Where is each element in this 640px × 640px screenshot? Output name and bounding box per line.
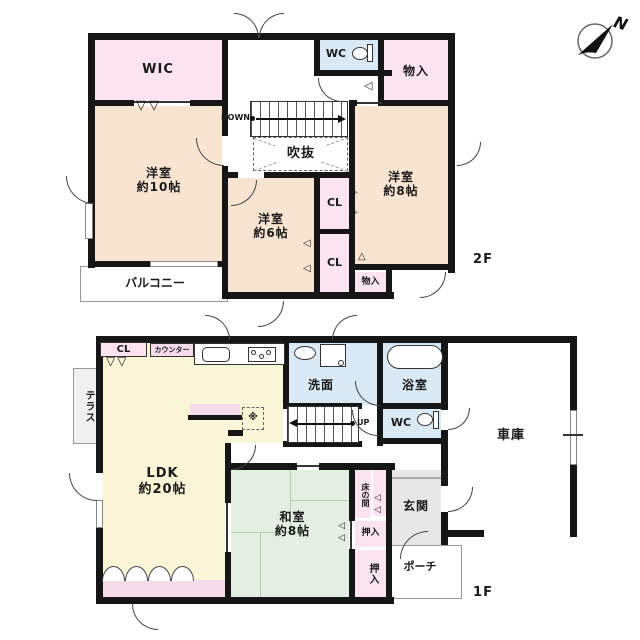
floor2-label: 2F	[468, 252, 498, 268]
stairs-arrow-line	[295, 423, 352, 425]
wall	[441, 336, 448, 410]
closet-lower-label: CL	[321, 256, 348, 269]
storage-2f-top-label: 物入	[392, 64, 440, 78]
door-arc	[457, 142, 481, 166]
stairs-arrow-line	[256, 118, 338, 120]
bedroom-8-size: 約8帖	[383, 184, 418, 198]
door-arc	[259, 13, 284, 38]
window	[150, 261, 218, 267]
stairs-arrow-head	[338, 115, 346, 123]
ldk-label: LDK 約20帖	[120, 466, 205, 497]
wall	[88, 100, 134, 106]
oshiire-lower-label: 押入	[363, 554, 378, 594]
closet-door-mark: ▷	[350, 188, 358, 198]
wall	[377, 438, 448, 444]
wall	[349, 264, 455, 270]
stove-burner-icon	[259, 354, 264, 359]
wic-label: WIC	[120, 62, 196, 78]
compass-north-label: N	[611, 12, 630, 34]
bifold-mark: ▽▽	[136, 99, 162, 112]
wall	[382, 100, 455, 106]
door-arc	[205, 315, 230, 340]
door-arc	[234, 13, 259, 38]
stairs-arrow-head	[289, 419, 297, 427]
bedroom-8-name: 洋室	[388, 170, 414, 184]
wall	[448, 530, 484, 537]
washitsu-label: 和室 約8帖	[250, 510, 335, 539]
wall	[228, 430, 243, 436]
counter-label: カウンター	[150, 346, 194, 354]
tokonoma-label: 床の間	[356, 473, 370, 517]
closet-door-mark: ◁	[374, 506, 381, 515]
wall	[314, 172, 320, 298]
closet-door-mark: ▷	[350, 208, 358, 218]
stairs-down-label: DOWN	[218, 113, 250, 123]
tatami-line	[290, 500, 349, 501]
bedroom-8-label: 洋室 約8帖	[363, 170, 439, 199]
wall	[314, 229, 355, 234]
door-track	[357, 102, 382, 104]
wall	[96, 528, 103, 604]
bedroom-6-size: 約6帖	[253, 226, 288, 240]
wall	[349, 549, 355, 604]
stairs-arrow-dot	[250, 116, 255, 121]
bath-label: 浴室	[392, 378, 438, 392]
stove-burner-icon	[251, 350, 256, 355]
toilet-tank-icon	[433, 411, 439, 429]
floor-plan-canvas: DOWN 吹抜 ▽▽ ▷ ▷ ◁ ◁ △ ◁ WIC WC 物入 洋室 約10	[0, 0, 640, 640]
terrace-label: テラス	[77, 375, 94, 437]
closet-door-mark: ◁	[374, 494, 381, 503]
washitsu-name: 和室	[279, 510, 305, 524]
bedroom-6-label: 洋室 約6帖	[233, 212, 309, 241]
storage-door-mark: △	[358, 252, 366, 262]
bedroom-6-name: 洋室	[258, 212, 284, 226]
porch-label: ポーチ	[394, 560, 446, 573]
cl-1f-label: CL	[100, 344, 147, 356]
window-tick	[563, 434, 583, 436]
wall	[225, 552, 231, 604]
closet-upper-label: CL	[321, 196, 348, 209]
closet-door-mark: ◁	[338, 534, 345, 543]
closet-door-mark: ◁	[303, 264, 311, 274]
door-arc	[448, 408, 470, 430]
ldk-size: 約20帖	[138, 482, 186, 497]
toilet-icon	[352, 47, 368, 60]
storage-2f-bottom-label: 物入	[354, 277, 387, 288]
sink-icon	[294, 346, 316, 360]
wall	[349, 106, 355, 298]
wall	[570, 465, 577, 537]
door-arc	[420, 272, 446, 298]
door-track	[350, 521, 352, 549]
window	[96, 500, 103, 528]
door-arc	[332, 315, 357, 340]
stove-burner-icon	[266, 350, 271, 355]
wall	[378, 33, 384, 106]
door-track	[226, 503, 228, 552]
washitsu-size: 約8帖	[275, 524, 310, 538]
storage-door-mark: ◁	[364, 80, 372, 91]
bedroom-10-label: 洋室 約10帖	[118, 166, 200, 195]
wall	[188, 415, 242, 420]
door-arc	[132, 604, 158, 630]
compass: N	[572, 10, 634, 66]
wc-2f-label: WC	[322, 47, 350, 60]
entrance-label: 玄関	[394, 499, 438, 513]
ldk-name: LDK	[146, 466, 178, 481]
tatami-line	[260, 532, 261, 597]
bedroom-10-size: 約10帖	[137, 180, 182, 194]
door-arc	[448, 487, 473, 512]
bathtub-icon	[387, 345, 443, 369]
bifold-mark: ▽▽	[106, 355, 128, 367]
garage-window	[570, 410, 577, 465]
refrigerator-mark: ※	[242, 412, 264, 424]
wc-1f-label: WC	[388, 416, 414, 429]
toilet-icon	[417, 413, 433, 426]
wall	[441, 512, 448, 545]
wall	[386, 470, 392, 604]
balcony-label: バルコニー	[105, 276, 205, 290]
veranda-strip	[100, 580, 225, 597]
toilet-tank-icon	[367, 44, 373, 62]
door-arc	[258, 301, 284, 327]
wall	[379, 403, 448, 409]
washroom-label: 洗面	[296, 378, 346, 392]
bedroom-10-name: 洋室	[146, 166, 172, 180]
washing-machine-dial-icon	[338, 360, 344, 366]
wall	[319, 463, 395, 470]
wall	[264, 172, 355, 178]
wall	[222, 166, 228, 298]
door-arc	[66, 176, 94, 204]
window	[85, 203, 93, 239]
closet-door-mark: ◁	[338, 522, 345, 531]
wall	[570, 336, 577, 410]
door-arc	[318, 78, 342, 102]
wall	[222, 172, 238, 178]
entrance-step-line	[392, 477, 441, 479]
wall	[349, 463, 355, 521]
void-label: 吹抜	[270, 146, 332, 162]
floor1-label: 1F	[468, 585, 498, 601]
wall	[448, 33, 455, 273]
kitchen-sink-icon	[202, 347, 230, 362]
oshiire-upper-label: 押入	[355, 528, 386, 539]
wall	[222, 292, 394, 299]
door-arc	[69, 473, 97, 501]
garage-label: 車庫	[488, 428, 534, 444]
door-track	[297, 465, 319, 467]
